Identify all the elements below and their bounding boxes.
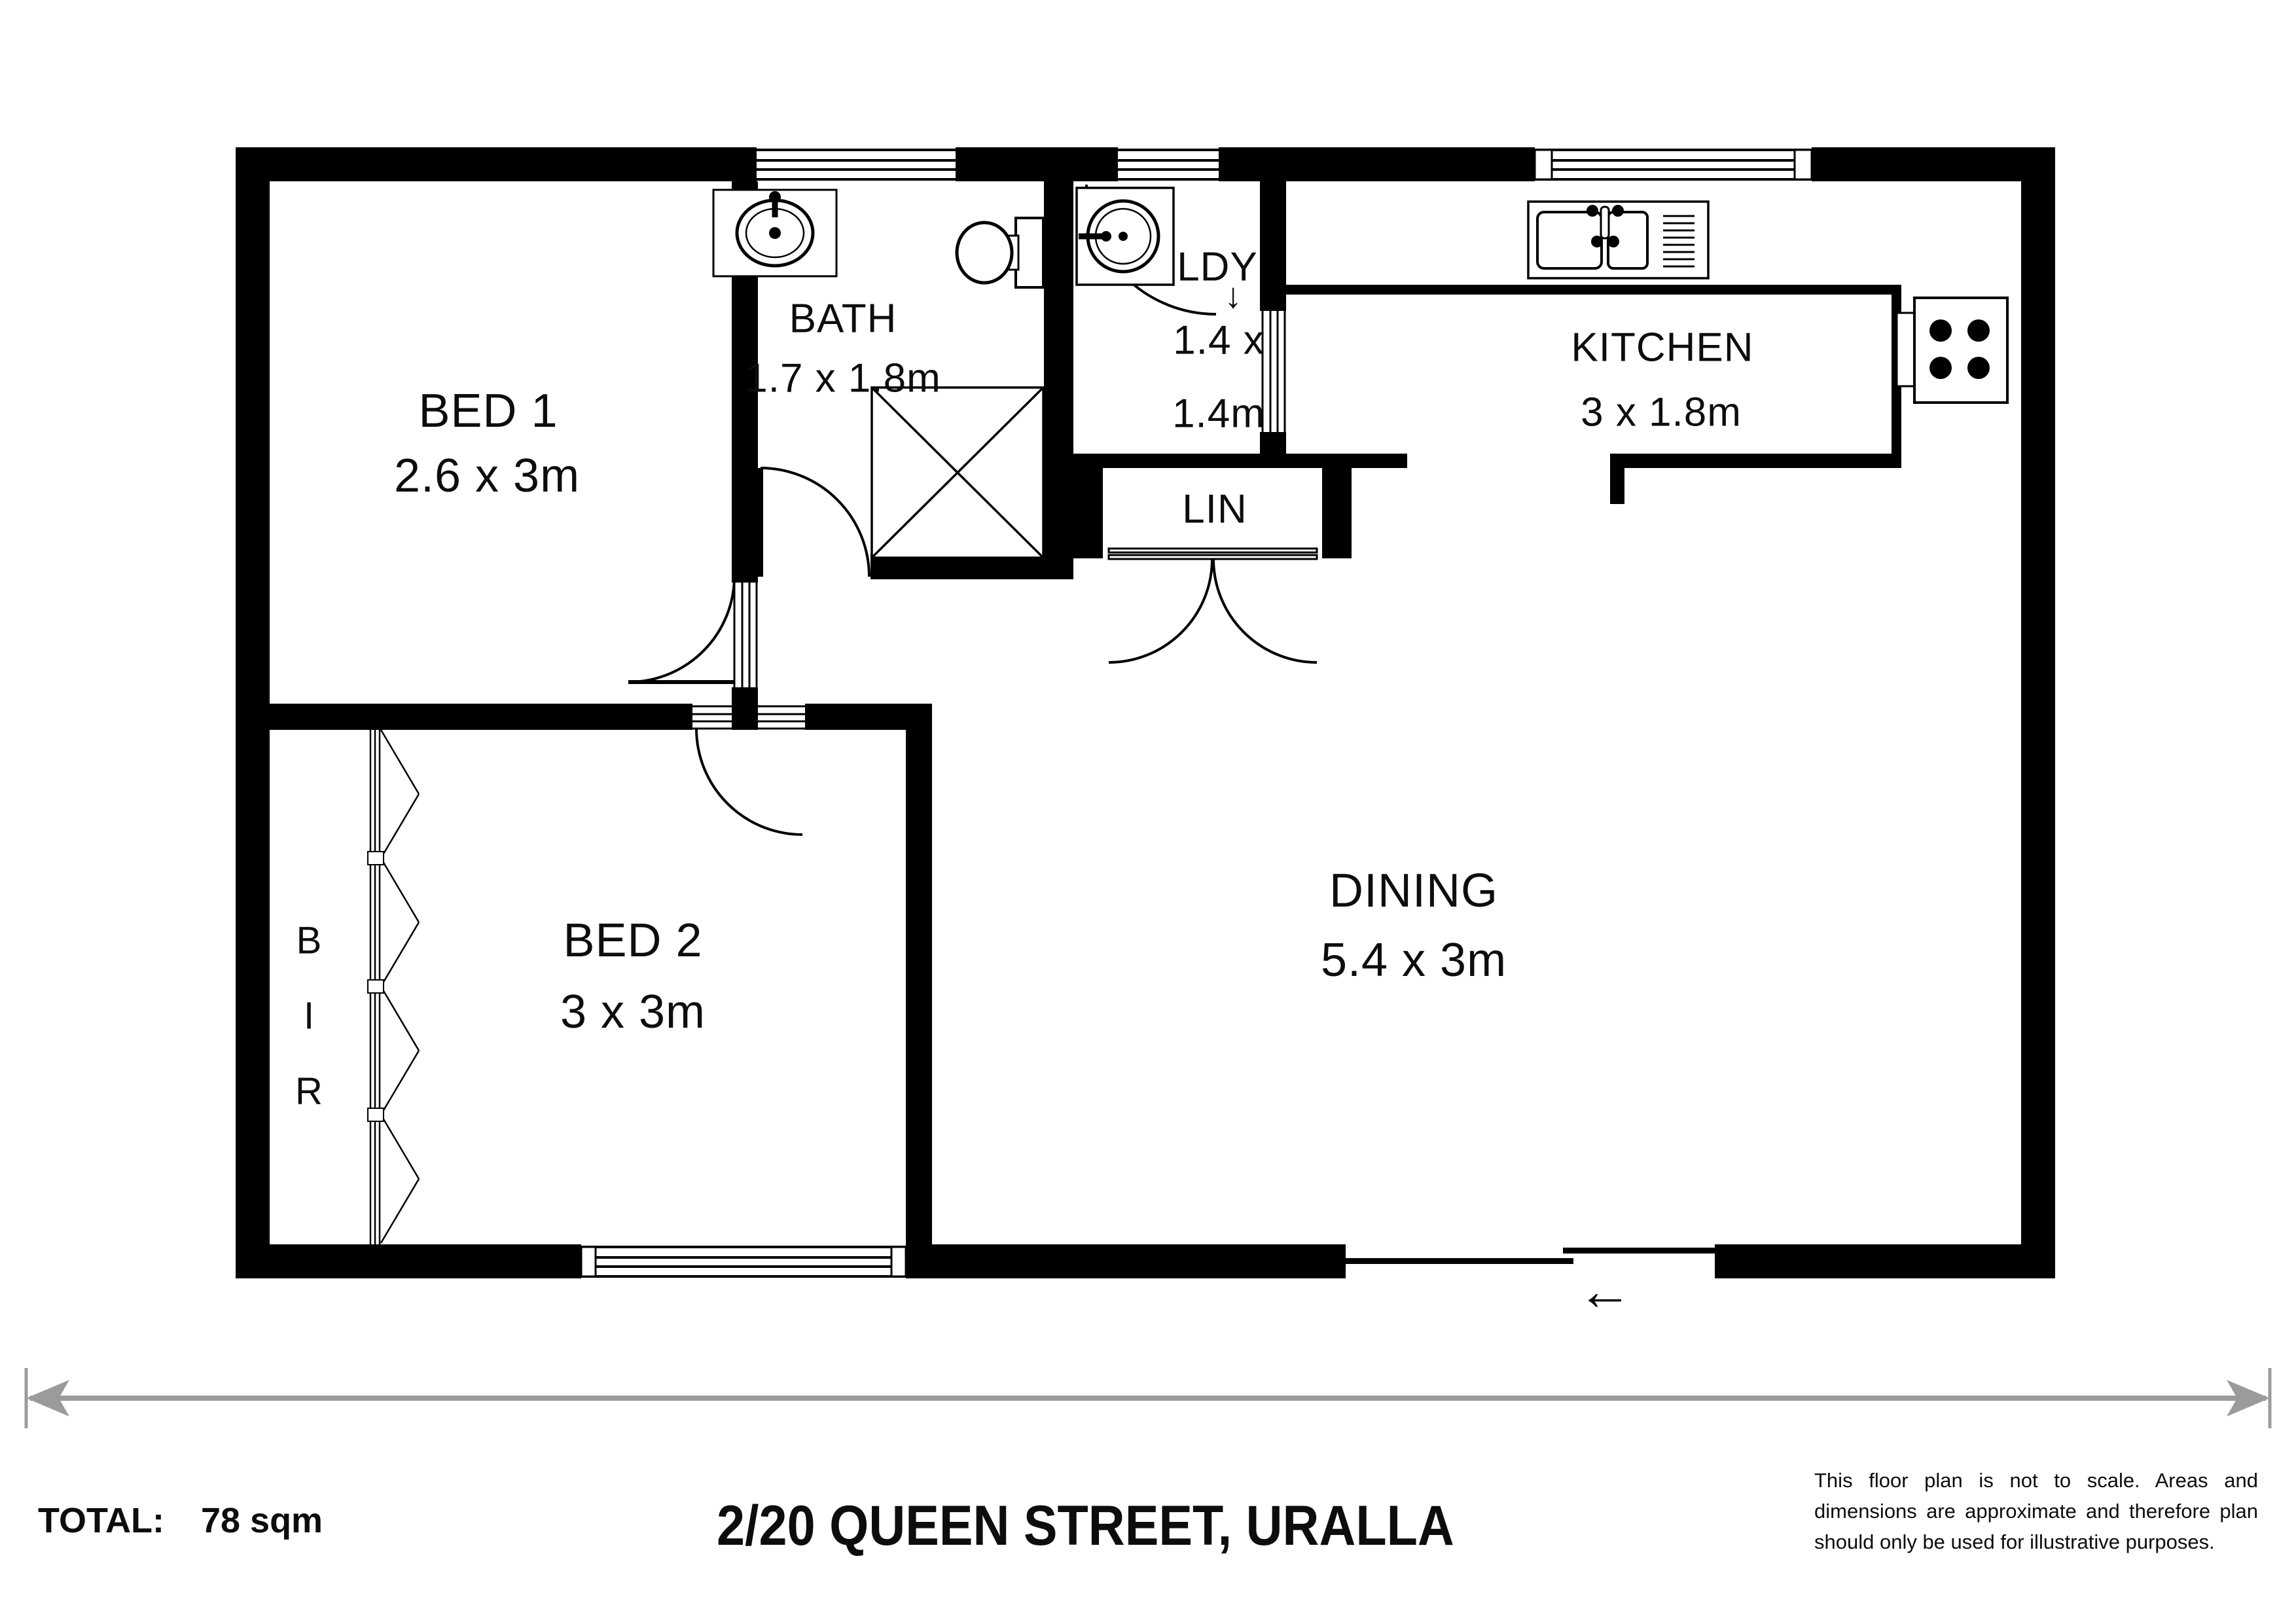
kitchen-dims: 3 x 1.8m [1581, 389, 1742, 436]
robe-letter-b: B [296, 919, 322, 963]
kitchen-label: KITCHEN [1571, 325, 1753, 371]
laundry-label: LDY [1177, 244, 1258, 291]
bed1-door [628, 576, 757, 687]
window-laundry [1118, 147, 1219, 181]
total-label: TOTAL: [38, 1501, 164, 1540]
robe-letter-i: I [304, 994, 314, 1038]
step-down-arrow-icon: ↓ [1225, 276, 1242, 316]
floor-plan-drawing [0, 0, 2296, 1624]
total-value: 78 sqm [201, 1501, 323, 1540]
entry-sliding-door [1346, 1244, 1715, 1278]
shower [872, 388, 1043, 558]
kitchen-sink [1528, 202, 1708, 278]
property-address-title: 2/20 QUEEN STREET, URALLA [717, 1494, 1365, 1559]
entry-arrow-icon: ← [1577, 1259, 1632, 1323]
total-area: TOTAL:78 sqm [38, 1500, 323, 1541]
cooktop [1897, 298, 2007, 403]
laundry-dims-line2: 1.4m [1172, 391, 1265, 437]
bed2-label: BED 2 [563, 914, 702, 967]
robe-letter-r: R [295, 1070, 323, 1113]
bath-label: BATH [789, 296, 897, 342]
toilet [957, 218, 1043, 287]
bath-dims: 1.7 x 1.8m [745, 355, 941, 402]
scale-arrow [26, 1368, 2270, 1428]
laundry-tub [1077, 188, 1174, 285]
bed2-dims: 3 x 3m [560, 985, 706, 1039]
window-bed2 [581, 1244, 906, 1278]
linen-label: LIN [1182, 486, 1247, 533]
dining-dims: 5.4 x 3m [1321, 933, 1507, 987]
bath-door [761, 468, 869, 577]
window-kitchen [1535, 147, 1812, 181]
laundry-dims-line1: 1.4 x [1173, 317, 1264, 364]
robe-bifold-doors [368, 730, 419, 1244]
linen-doors [1109, 549, 1317, 662]
bed1-label: BED 1 [418, 384, 558, 438]
disclaimer-text: This floor plan is not to scale. Areas a… [1814, 1465, 2258, 1557]
floor-plan-page: BED 1 2.6 x 3m BATH 1.7 x 1.8m LDY 1.4 x… [0, 0, 2296, 1624]
window-bath [757, 147, 956, 181]
bed1-dims: 2.6 x 3m [394, 449, 580, 503]
dining-label: DINING [1329, 864, 1498, 918]
bathroom-basin [713, 190, 836, 276]
